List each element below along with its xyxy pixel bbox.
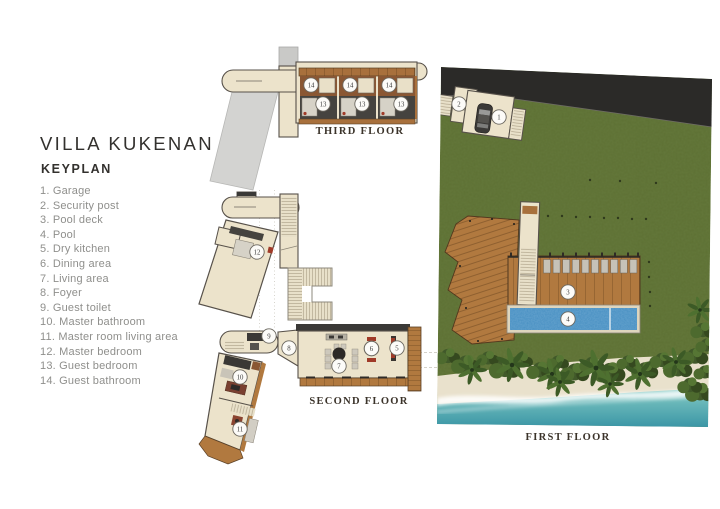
- svg-text:14: 14: [308, 83, 315, 90]
- room-marker-security-post: 2: [452, 97, 466, 111]
- svg-text:13: 13: [398, 102, 405, 109]
- svg-text:8: 8: [287, 346, 291, 353]
- keyplan-sheet: VILLA KUKENAN KEYPLAN 1. Garage 2. Secur…: [0, 0, 720, 509]
- room-marker-guest-toilet: 9: [262, 329, 276, 343]
- bathroom-fixtures: [319, 78, 335, 93]
- third-floor-label: THIRD FLOOR: [316, 126, 405, 137]
- room-marker-pool: 4: [561, 312, 575, 326]
- bathroom-fixtures: [358, 78, 374, 93]
- master-bedroom-wing: [199, 220, 278, 318]
- svg-text:4: 4: [566, 317, 570, 324]
- walkway-ramp: [210, 92, 278, 190]
- first-floor-label: FIRST FLOOR: [526, 432, 611, 443]
- floor-plans-canvas: 14 14 14 13 13 13 THIRD FLOOR: [0, 0, 720, 509]
- svg-text:14: 14: [386, 83, 393, 90]
- room-marker-foyer: 8: [282, 341, 296, 355]
- room-marker-guest-bedroom: 13: [316, 97, 330, 111]
- stair-tower: [517, 202, 540, 306]
- svg-text:14: 14: [347, 83, 354, 90]
- staircase: [288, 268, 332, 320]
- svg-text:2: 2: [457, 102, 461, 109]
- room-marker-living-area: 7: [332, 359, 346, 373]
- second-floor-label: SECOND FLOOR: [309, 396, 408, 407]
- room-marker-dining-area: 6: [364, 341, 378, 355]
- entry-stairs: [437, 95, 453, 117]
- svg-text:11: 11: [237, 427, 244, 434]
- svg-text:6: 6: [370, 346, 374, 353]
- svg-text:10: 10: [237, 375, 244, 382]
- room-marker-master-bedroom: 12: [250, 245, 264, 259]
- dining-chair: [367, 337, 376, 341]
- room-marker-guest-bathroom: 14: [343, 78, 357, 92]
- room-marker-pool-deck: 3: [561, 285, 575, 299]
- svg-text:1: 1: [497, 115, 500, 122]
- second-floor-plan: 12 9 8 7 6 5 10 11 SECOND FLOOR: [199, 192, 421, 464]
- svg-text:9: 9: [267, 334, 271, 341]
- room-marker-master-room-living-area: 11: [233, 422, 247, 436]
- room-marker-guest-bathroom: 14: [304, 78, 318, 92]
- bathroom-fixtures: [397, 78, 413, 93]
- corridor-stairs: [282, 197, 297, 237]
- master-bath-wing: [199, 353, 266, 464]
- hall-glazing: [296, 324, 410, 331]
- svg-text:3: 3: [566, 290, 570, 297]
- dining-chair: [367, 358, 376, 362]
- svg-text:5: 5: [395, 346, 399, 353]
- svg-text:13: 13: [320, 102, 327, 109]
- room-marker-guest-bathroom: 14: [382, 78, 396, 92]
- third-bottom-deck: [299, 119, 415, 124]
- svg-text:13: 13: [359, 102, 366, 109]
- third-floor-plan: 14 14 14 13 13 13 THIRD FLOOR: [210, 47, 427, 190]
- room-marker-master-bathroom: 10: [233, 370, 247, 384]
- main-hall: [296, 324, 421, 391]
- svg-text:7: 7: [337, 364, 341, 371]
- first-floor-plan: 2 1 3 4 FIRST FLOOR: [435, 60, 718, 443]
- room-marker-dry-kitchen: 5: [390, 341, 404, 355]
- room-marker-guest-bedroom: 13: [394, 97, 408, 111]
- room-marker-garage: 1: [492, 110, 506, 124]
- svg-text:12: 12: [254, 250, 261, 257]
- room-marker-guest-bedroom: 13: [355, 97, 369, 111]
